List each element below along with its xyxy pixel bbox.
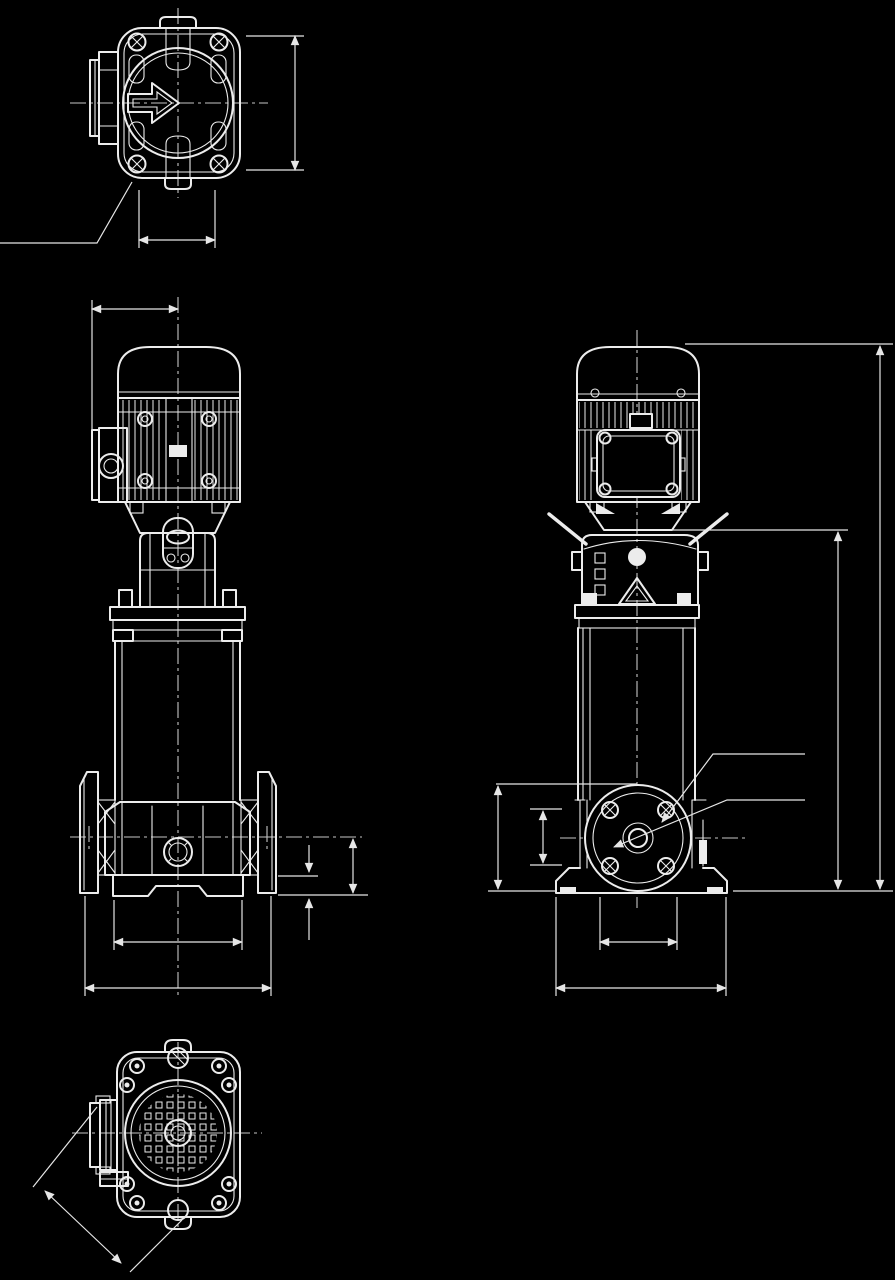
strainer-circle — [125, 1080, 231, 1186]
side-elevation — [488, 330, 893, 996]
priming-plug — [628, 548, 646, 566]
port-flange-face — [585, 785, 691, 891]
front-motor — [92, 347, 240, 502]
conduit-boss — [99, 454, 123, 478]
base-plate — [90, 1040, 240, 1229]
bottom-view — [33, 1040, 262, 1272]
side-motor — [577, 347, 699, 530]
pump-dimensional-drawing — [0, 0, 895, 1280]
side-base — [556, 785, 727, 893]
nameplate — [169, 445, 187, 457]
motor-dome-cap — [118, 347, 240, 398]
suction-flange — [80, 772, 115, 893]
drawing-canvas — [0, 0, 895, 1280]
terminal-box-face — [592, 430, 685, 497]
pump-head — [549, 514, 727, 628]
front-elevation — [70, 297, 368, 998]
top-view — [0, 8, 304, 248]
discharge-flange — [241, 772, 276, 893]
guard-rod-left — [549, 514, 586, 544]
terminal-box-stub — [90, 52, 118, 144]
top-view-dimensions — [0, 36, 304, 248]
leader-line — [0, 182, 132, 243]
base-rib — [699, 840, 707, 864]
dim-diagonal-clearance — [45, 1191, 121, 1263]
conduit-entry — [630, 414, 652, 428]
